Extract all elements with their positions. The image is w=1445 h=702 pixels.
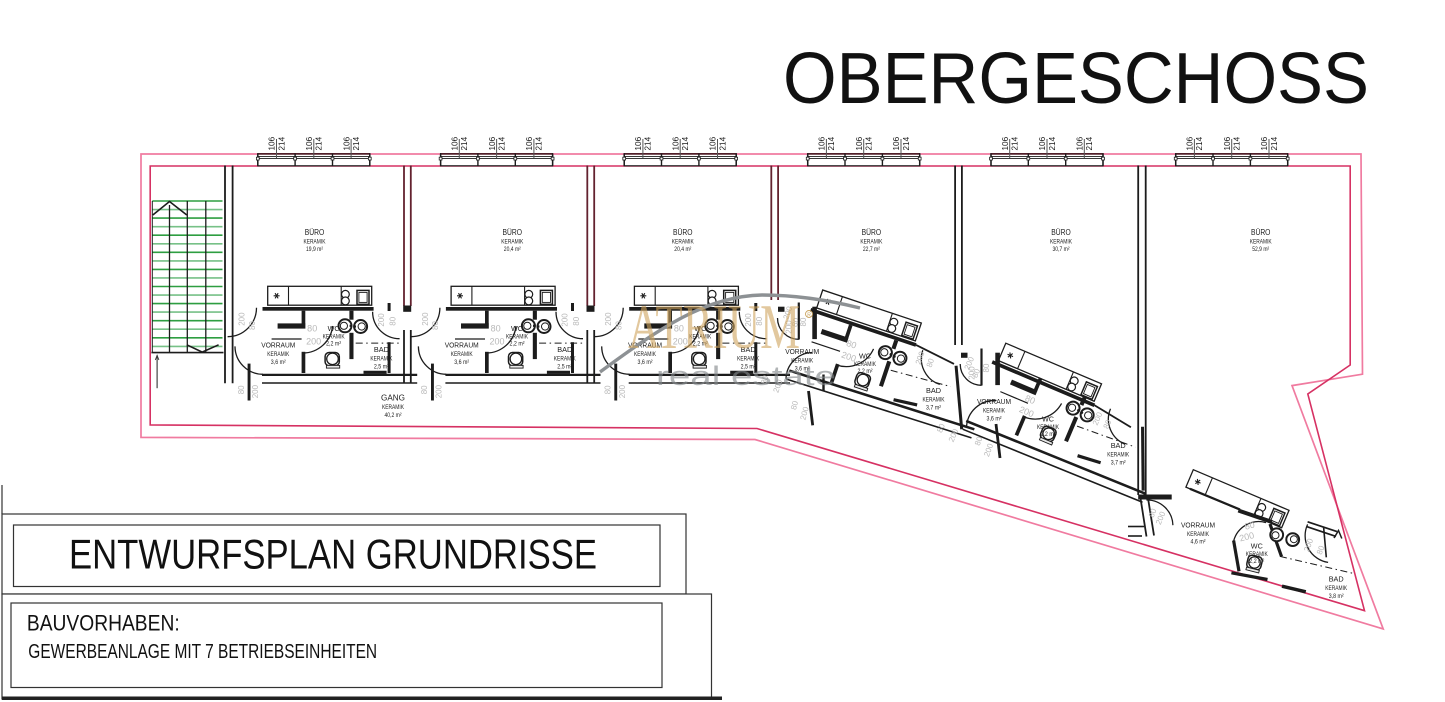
- svg-text:214: 214: [1048, 136, 1057, 150]
- svg-text:WC: WC: [328, 324, 341, 333]
- svg-text:106: 106: [671, 136, 680, 150]
- svg-text:R: R: [807, 313, 811, 319]
- svg-text:200: 200: [377, 313, 386, 327]
- svg-text:200: 200: [799, 405, 811, 421]
- svg-text:214: 214: [827, 136, 836, 150]
- svg-text:200: 200: [968, 366, 977, 380]
- svg-text:BÜRO: BÜRO: [503, 228, 523, 237]
- svg-text:3,7 m²: 3,7 m²: [926, 406, 941, 412]
- svg-text:80: 80: [420, 385, 429, 394]
- svg-text:214: 214: [644, 136, 653, 150]
- svg-text:106: 106: [1186, 136, 1195, 150]
- svg-text:214: 214: [902, 136, 911, 150]
- svg-text:KERAMIK: KERAMIK: [1050, 239, 1072, 245]
- svg-text:80: 80: [935, 422, 947, 434]
- svg-text:KERAMIK: KERAMIK: [382, 405, 404, 411]
- svg-text:200: 200: [251, 384, 260, 398]
- svg-text:OBERGESCHOSS: OBERGESCHOSS: [783, 39, 1369, 119]
- svg-text:106: 106: [634, 136, 643, 150]
- svg-text:80: 80: [389, 316, 398, 325]
- svg-text:BAD: BAD: [1329, 575, 1344, 584]
- svg-text:KERAMIK: KERAMIK: [554, 357, 576, 363]
- svg-text:106: 106: [1076, 136, 1085, 150]
- svg-text:200: 200: [238, 312, 247, 326]
- svg-text:KERAMIK: KERAMIK: [1187, 532, 1209, 538]
- svg-text:200: 200: [561, 313, 570, 327]
- svg-text:WC: WC: [859, 352, 872, 361]
- svg-text:KERAMIK: KERAMIK: [1250, 239, 1272, 245]
- svg-text:200: 200: [1302, 537, 1315, 553]
- svg-text:22,7 m²: 22,7 m²: [863, 247, 880, 253]
- svg-text:WC: WC: [1042, 415, 1055, 424]
- svg-text:WC: WC: [511, 324, 524, 333]
- svg-text:214: 214: [315, 136, 324, 150]
- svg-text:214: 214: [460, 136, 469, 150]
- svg-text:4,6 m²: 4,6 m²: [1191, 540, 1206, 546]
- svg-text:200: 200: [421, 312, 430, 326]
- svg-text:106: 106: [451, 136, 460, 150]
- svg-text:KERAMIK: KERAMIK: [1325, 586, 1347, 592]
- svg-text:KERAMIK: KERAMIK: [501, 239, 523, 245]
- svg-text:80: 80: [307, 324, 317, 334]
- svg-text:20,4 m²: 20,4 m²: [674, 247, 691, 253]
- svg-text:200: 200: [947, 427, 961, 443]
- svg-text:80: 80: [615, 321, 624, 330]
- svg-text:2,2 m²: 2,2 m²: [510, 342, 525, 348]
- svg-text:106: 106: [342, 136, 351, 150]
- svg-text:KERAMIK: KERAMIK: [323, 335, 345, 341]
- svg-text:KERAMIK: KERAMIK: [1246, 552, 1268, 558]
- svg-text:BAD: BAD: [1111, 441, 1126, 450]
- svg-text:200: 200: [982, 442, 995, 458]
- svg-text:200: 200: [1018, 404, 1036, 419]
- svg-text:200: 200: [604, 312, 613, 326]
- svg-text:106: 106: [1260, 136, 1269, 150]
- svg-text:2,2 m²: 2,2 m²: [858, 369, 873, 375]
- svg-text:BAUVORHABEN:: BAUVORHABEN:: [27, 611, 180, 636]
- svg-text:80: 80: [925, 357, 937, 369]
- svg-text:214: 214: [718, 136, 727, 150]
- svg-text:20,4 m²: 20,4 m²: [504, 247, 521, 253]
- svg-text:214: 214: [352, 136, 361, 150]
- svg-text:KERAMIK: KERAMIK: [1107, 453, 1129, 459]
- svg-text:real estate: real estate: [656, 361, 836, 391]
- svg-text:214: 214: [1195, 136, 1204, 150]
- svg-text:106: 106: [709, 136, 718, 150]
- svg-text:80: 80: [789, 399, 800, 410]
- svg-text:KERAMIK: KERAMIK: [370, 357, 392, 363]
- svg-text:VORRAUM: VORRAUM: [977, 397, 1011, 406]
- svg-text:2,2 m²: 2,2 m²: [1041, 432, 1056, 438]
- svg-text:214: 214: [681, 136, 690, 150]
- svg-text:106: 106: [305, 136, 314, 150]
- svg-text:2,2 m²: 2,2 m²: [326, 342, 341, 348]
- svg-text:KERAMIK: KERAMIK: [983, 409, 1005, 415]
- svg-text:BAD: BAD: [374, 345, 389, 354]
- svg-text:VORRAUM: VORRAUM: [1181, 520, 1215, 529]
- svg-text:2,2 m²: 2,2 m²: [1249, 559, 1264, 565]
- svg-text:214: 214: [1011, 136, 1020, 150]
- svg-text:WC: WC: [1251, 542, 1264, 551]
- svg-text:KERAMIK: KERAMIK: [672, 239, 694, 245]
- svg-text:52,9 m²: 52,9 m²: [1252, 247, 1269, 253]
- svg-text:106: 106: [268, 136, 277, 150]
- svg-text:3,8 m²: 3,8 m²: [1329, 594, 1344, 600]
- svg-text:GANG: GANG: [381, 393, 405, 402]
- svg-text:BÜRO: BÜRO: [305, 228, 325, 237]
- svg-text:106: 106: [855, 136, 864, 150]
- svg-text:80: 80: [431, 321, 440, 330]
- svg-text:KERAMIK: KERAMIK: [304, 239, 326, 245]
- svg-text:106: 106: [1001, 136, 1010, 150]
- svg-text:BAD: BAD: [926, 386, 941, 395]
- svg-text:106: 106: [488, 136, 497, 150]
- svg-text:3,6 m²: 3,6 m²: [454, 360, 469, 366]
- svg-text:BÜRO: BÜRO: [862, 228, 882, 237]
- svg-text:80: 80: [845, 338, 858, 351]
- svg-text:80: 80: [1102, 418, 1114, 430]
- svg-text:30,7 m²: 30,7 m²: [1053, 247, 1070, 253]
- svg-text:106: 106: [525, 136, 534, 150]
- svg-text:200: 200: [306, 336, 321, 346]
- svg-text:3,6 m²: 3,6 m²: [271, 360, 286, 366]
- svg-text:ENTWURFSPLAN GRUNDRISSE: ENTWURFSPLAN GRUNDRISSE: [69, 531, 597, 578]
- svg-text:80: 80: [1024, 393, 1037, 406]
- svg-text:BÜRO: BÜRO: [673, 228, 693, 237]
- svg-text:80: 80: [248, 321, 257, 330]
- svg-text:KERAMIK: KERAMIK: [506, 335, 528, 341]
- svg-text:80: 80: [572, 316, 581, 325]
- svg-text:19,9 m²: 19,9 m²: [306, 247, 323, 253]
- svg-text:214: 214: [1233, 136, 1242, 150]
- svg-text:GEWERBEANLAGE MIT 7 BETRIEBSEI: GEWERBEANLAGE MIT 7 BETRIEBSEINHEITEN: [28, 640, 377, 663]
- svg-text:214: 214: [1270, 136, 1279, 150]
- svg-text:KERAMIK: KERAMIK: [267, 352, 289, 358]
- svg-text:3,7 m²: 3,7 m²: [1111, 461, 1126, 467]
- svg-text:200: 200: [489, 336, 504, 346]
- svg-text:80: 80: [982, 363, 991, 372]
- svg-text:KERAMIK: KERAMIK: [451, 352, 473, 358]
- svg-text:214: 214: [535, 136, 544, 150]
- svg-text:3,6 m²: 3,6 m²: [987, 416, 1002, 422]
- svg-text:214: 214: [865, 136, 874, 150]
- svg-text:214: 214: [1085, 136, 1094, 150]
- svg-text:80: 80: [237, 385, 246, 394]
- svg-text:40,2 m²: 40,2 m²: [385, 413, 402, 419]
- svg-text:BÜRO: BÜRO: [1051, 228, 1071, 237]
- svg-text:200: 200: [435, 384, 444, 398]
- svg-text:BAD: BAD: [557, 345, 572, 354]
- svg-text:KERAMIK: KERAMIK: [1037, 425, 1059, 431]
- svg-text:106: 106: [1038, 136, 1047, 150]
- svg-text:214: 214: [497, 136, 506, 150]
- svg-text:KERAMIK: KERAMIK: [923, 398, 945, 404]
- svg-text:80: 80: [604, 385, 613, 394]
- svg-text:200: 200: [618, 384, 627, 398]
- svg-text:VORRAUM: VORRAUM: [445, 341, 479, 350]
- svg-text:VORRAUM: VORRAUM: [261, 341, 295, 350]
- svg-text:106: 106: [1223, 136, 1232, 150]
- svg-text:2,5 m²: 2,5 m²: [374, 365, 389, 371]
- svg-text:KERAMIK: KERAMIK: [854, 362, 876, 368]
- svg-text:2,5 m²: 2,5 m²: [557, 365, 572, 371]
- svg-text:KERAMIK: KERAMIK: [860, 239, 882, 245]
- svg-text:214: 214: [277, 136, 286, 150]
- svg-text:BÜRO: BÜRO: [1251, 228, 1271, 237]
- svg-text:80: 80: [491, 324, 501, 334]
- svg-text:ATRIUM: ATRIUM: [628, 291, 800, 362]
- svg-text:106: 106: [818, 136, 827, 150]
- svg-text:106: 106: [892, 136, 901, 150]
